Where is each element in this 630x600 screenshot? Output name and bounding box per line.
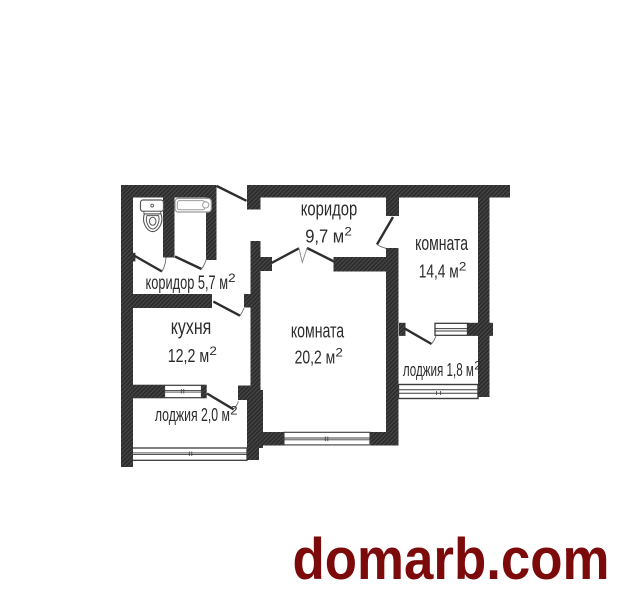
svg-text:2: 2 xyxy=(344,227,352,239)
svg-text:14,4 м: 14,4 м xyxy=(419,261,459,282)
svg-text:коридор: коридор xyxy=(301,198,358,221)
svg-text:domarb.com: domarb.com xyxy=(293,527,610,592)
svg-text:2: 2 xyxy=(228,273,236,285)
svg-text:9,7 м: 9,7 м xyxy=(305,226,344,247)
svg-text:12,2 м: 12,2 м xyxy=(168,345,210,366)
svg-text:2: 2 xyxy=(459,262,467,274)
svg-text:2: 2 xyxy=(209,346,217,358)
svg-text:комната: комната xyxy=(291,320,345,343)
svg-text:2: 2 xyxy=(474,361,482,373)
svg-text:коридор 5,7 м: коридор 5,7 м xyxy=(146,272,229,294)
svg-text:2: 2 xyxy=(335,348,343,360)
svg-text:20,2 м: 20,2 м xyxy=(295,347,336,368)
svg-text:кухня: кухня xyxy=(171,316,212,339)
svg-text:лоджия 2,0 м: лоджия 2,0 м xyxy=(155,405,230,425)
svg-text:2: 2 xyxy=(230,406,238,418)
svg-text:лоджия 1,8 м: лоджия 1,8 м xyxy=(403,360,474,380)
svg-text:комната: комната xyxy=(415,232,468,255)
